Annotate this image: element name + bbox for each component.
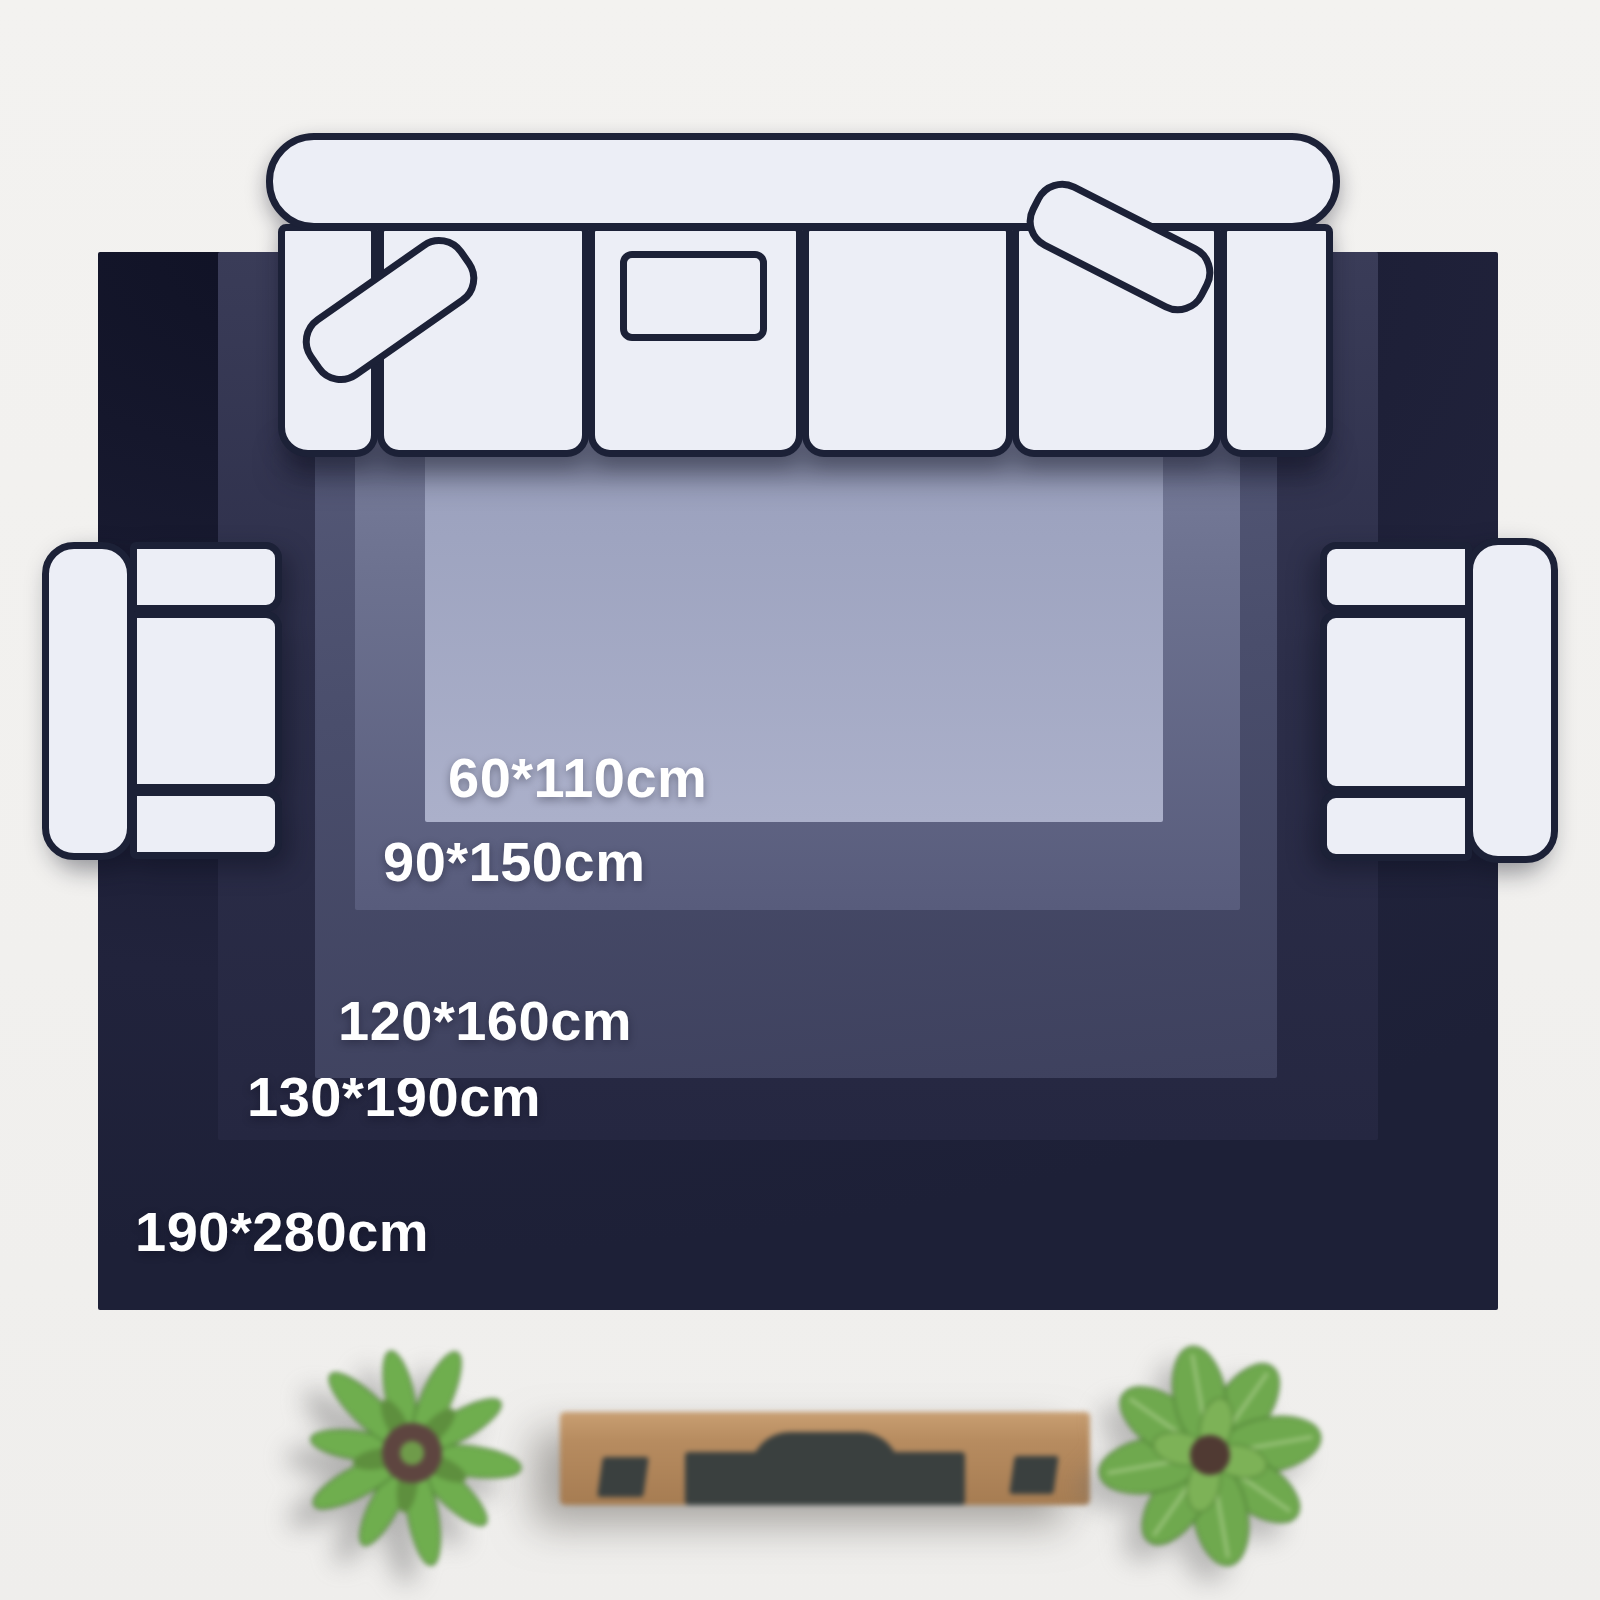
rug-size-label: 60*110cm	[448, 750, 707, 806]
armchair-backrest	[42, 542, 134, 860]
sofa	[260, 133, 1340, 457]
armchair-right	[1320, 538, 1558, 863]
sofa-backrest	[266, 133, 1340, 230]
console-cutout-center	[685, 1452, 965, 1505]
armchair-armrest-bottom	[130, 789, 282, 859]
plant-icon	[1080, 1325, 1340, 1585]
rug-size-label: 90*150cm	[383, 834, 645, 890]
sofa-seat-cushion	[802, 224, 1013, 457]
armchair-armrest-top	[130, 542, 282, 612]
rug-size-label: 120*160cm	[338, 993, 632, 1049]
sofa-armrest-right	[1220, 224, 1333, 457]
armchair-backrest	[1466, 538, 1558, 863]
rug-size-label: 190*280cm	[135, 1204, 429, 1260]
rug-size-guide-scene: 190*280cm 130*190cm 120*160cm 90*150cm 6…	[0, 0, 1600, 1600]
console-cutout-left	[597, 1457, 649, 1497]
console-cutout-right	[1009, 1456, 1058, 1494]
sofa-pillow-square	[620, 251, 767, 341]
armchair-seat	[130, 611, 282, 791]
tv-console	[560, 1412, 1090, 1505]
armchair-armrest-bottom	[1320, 791, 1472, 861]
armchair-armrest-top	[1320, 542, 1472, 612]
armchair-left	[42, 537, 282, 863]
plant-icon	[292, 1333, 532, 1573]
armchair-seat	[1320, 611, 1472, 793]
